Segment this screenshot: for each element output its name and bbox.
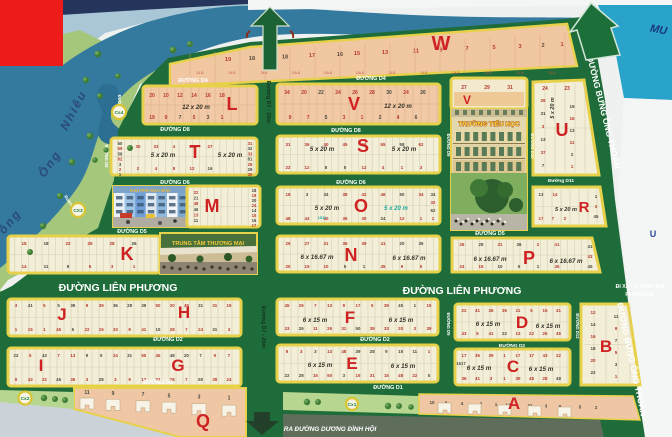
svg-text:12: 12 — [400, 216, 405, 221]
svg-text:Đường D7 - 20m: Đường D7 - 20m — [265, 81, 271, 123]
svg-text:6 x 16.67 m: 6 x 16.67 m — [300, 254, 334, 261]
svg-text:36: 36 — [419, 241, 424, 246]
svg-text:48: 48 — [398, 373, 403, 378]
svg-text:28: 28 — [109, 241, 115, 246]
svg-text:4: 4 — [397, 115, 400, 121]
svg-text:24-B: 24-B — [484, 71, 492, 75]
svg-text:ĐƯỜNG D6: ĐƯỜNG D6 — [160, 178, 189, 186]
svg-text:5: 5 — [579, 404, 582, 409]
svg-text:13: 13 — [327, 303, 332, 308]
svg-text:24: 24 — [227, 377, 232, 382]
svg-text:1617: 1617 — [456, 361, 466, 366]
svg-text:16: 16 — [205, 93, 211, 99]
svg-text:5 x 20 m: 5 x 20 m — [315, 205, 340, 212]
svg-text:26: 26 — [299, 303, 304, 308]
svg-text:39: 39 — [99, 303, 104, 308]
svg-text:ĐƯỜNG D10: ĐƯỜNG D10 — [530, 133, 535, 159]
svg-text:28: 28 — [127, 303, 132, 308]
svg-text:22: 22 — [285, 373, 290, 378]
svg-text:18: 18 — [282, 54, 288, 60]
svg-text:45: 45 — [56, 377, 61, 382]
svg-text:13: 13 — [540, 137, 546, 142]
svg-text:11: 11 — [44, 264, 49, 269]
svg-text:50: 50 — [156, 303, 161, 308]
svg-text:V: V — [348, 94, 360, 114]
svg-text:33: 33 — [384, 326, 389, 331]
svg-text:30: 30 — [386, 90, 392, 96]
svg-text:14: 14 — [21, 264, 27, 269]
svg-text:24.8: 24.8 — [261, 71, 268, 75]
svg-text:20: 20 — [149, 93, 155, 99]
svg-text:33: 33 — [113, 327, 118, 332]
svg-text:19: 19 — [569, 104, 575, 109]
svg-text:24-B: 24-B — [196, 71, 204, 75]
svg-text:28: 28 — [170, 327, 175, 332]
svg-text:6: 6 — [415, 115, 418, 121]
svg-text:6 x 15 m: 6 x 15 m — [303, 317, 328, 324]
svg-text:DA-8: DA-8 — [356, 71, 364, 75]
svg-text:5: 5 — [193, 115, 196, 121]
svg-text:24: 24 — [381, 216, 386, 221]
svg-text:39: 39 — [427, 326, 432, 331]
svg-text:17: 17 — [309, 53, 315, 59]
svg-text:CX3: CX3 — [73, 208, 83, 214]
svg-text:45: 45 — [381, 264, 386, 269]
svg-text:36: 36 — [517, 242, 522, 247]
svg-text:P: P — [523, 248, 535, 268]
svg-text:12: 12 — [590, 310, 596, 315]
svg-text:11: 11 — [413, 49, 419, 55]
svg-text:36: 36 — [502, 308, 507, 313]
svg-text:19: 19 — [149, 115, 155, 121]
svg-text:11: 11 — [84, 390, 90, 396]
svg-text:41: 41 — [475, 376, 480, 381]
svg-text:26: 26 — [420, 90, 426, 96]
svg-text:RA ĐƯỜNG DƯƠNG ĐÌNH HỘI: RA ĐƯỜNG DƯƠNG ĐÌNH HỘI — [284, 424, 377, 433]
svg-text:17: 17 — [356, 303, 361, 308]
svg-text:12: 12 — [362, 165, 367, 170]
svg-text:48: 48 — [286, 216, 291, 221]
svg-text:1: 1 — [133, 264, 136, 269]
svg-text:31: 31 — [212, 327, 217, 332]
svg-text:43: 43 — [28, 377, 33, 382]
svg-text:31: 31 — [370, 373, 375, 378]
svg-text:6 x 15 m: 6 x 15 m — [476, 321, 501, 328]
svg-text:PHÍA ĐÔNG: PHÍA ĐÔNG — [625, 290, 654, 298]
svg-text:39: 39 — [70, 303, 75, 308]
svg-text:30: 30 — [362, 216, 367, 221]
svg-text:6 x 15 m: 6 x 15 m — [529, 366, 554, 373]
svg-text:62: 62 — [431, 208, 436, 213]
svg-text:1: 1 — [361, 115, 364, 121]
svg-text:28: 28 — [479, 242, 484, 247]
svg-text:26: 26 — [327, 326, 332, 331]
svg-text:DA-8: DA-8 — [324, 71, 332, 75]
svg-text:15: 15 — [28, 327, 33, 332]
svg-text:24: 24 — [113, 353, 118, 358]
svg-text:43: 43 — [588, 254, 593, 259]
svg-text:31: 31 — [127, 353, 132, 358]
svg-text:15: 15 — [354, 51, 360, 57]
svg-text:17: 17 — [252, 223, 257, 228]
svg-text:9: 9 — [67, 264, 70, 269]
svg-text:6 x 16.67 m: 6 x 16.67 m — [549, 258, 583, 265]
svg-text:50: 50 — [327, 373, 332, 378]
svg-text:13: 13 — [327, 349, 332, 354]
svg-text:14: 14 — [553, 192, 558, 197]
svg-text:41: 41 — [141, 327, 146, 332]
svg-text:20: 20 — [400, 241, 405, 246]
svg-text:KHU PHỐ MUA BÁN: KHU PHỐ MUA BÁN — [130, 188, 170, 193]
svg-text:45: 45 — [56, 327, 61, 332]
svg-text:22: 22 — [462, 308, 467, 313]
svg-text:17: 17 — [462, 353, 467, 358]
svg-text:41: 41 — [555, 242, 560, 247]
svg-text:31: 31 — [507, 85, 513, 91]
svg-text:41: 41 — [28, 303, 33, 308]
svg-text:45: 45 — [285, 303, 290, 308]
svg-text:44: 44 — [305, 216, 310, 221]
svg-text:1511: 1511 — [318, 215, 327, 220]
svg-text:33: 33 — [285, 326, 290, 331]
svg-text:2: 2 — [571, 152, 574, 157]
svg-text:39: 39 — [212, 377, 217, 382]
svg-text:39: 39 — [516, 376, 521, 381]
svg-text:48: 48 — [194, 201, 199, 206]
svg-text:43: 43 — [543, 353, 548, 358]
svg-text:28: 28 — [299, 373, 304, 378]
svg-text:45: 45 — [588, 264, 593, 269]
svg-text:46: 46 — [194, 207, 199, 212]
svg-text:22: 22 — [556, 353, 561, 358]
svg-text:45: 45 — [594, 214, 599, 219]
svg-text:7: 7 — [179, 115, 182, 121]
svg-text:Đường D7 - 20m: Đường D7 - 20m — [260, 306, 266, 348]
svg-text:24: 24 — [403, 90, 409, 96]
svg-text:1: 1 — [571, 164, 574, 169]
svg-text:31: 31 — [198, 303, 203, 308]
svg-text:24-B: 24-B — [388, 71, 396, 75]
svg-text:24-B: 24-B — [516, 71, 524, 75]
svg-text:2: 2 — [541, 43, 544, 49]
svg-text:7: 7 — [142, 392, 145, 398]
svg-text:12: 12 — [305, 165, 310, 170]
svg-text:20: 20 — [170, 303, 175, 308]
svg-text:15: 15 — [227, 303, 232, 308]
svg-text:D4-B: D4-B — [452, 71, 460, 75]
svg-text:M: M — [205, 196, 220, 216]
svg-text:45: 45 — [343, 142, 348, 147]
svg-text:1: 1 — [228, 396, 231, 402]
svg-text:T: T — [190, 142, 201, 162]
svg-text:24: 24 — [335, 90, 341, 96]
svg-text:55: 55 — [381, 142, 386, 147]
svg-text:16: 16 — [590, 334, 596, 339]
svg-text:22: 22 — [529, 331, 534, 336]
svg-text:45: 45 — [556, 331, 561, 336]
svg-text:36: 36 — [489, 308, 494, 313]
svg-text:32: 32 — [431, 200, 436, 205]
svg-text:34: 34 — [284, 90, 290, 96]
svg-text:G: G — [171, 356, 184, 375]
svg-text:17: 17 — [529, 353, 534, 358]
svg-text:22: 22 — [502, 331, 507, 336]
svg-text:35: 35 — [136, 144, 141, 149]
svg-text:5 x 20 m: 5 x 20 m — [151, 152, 176, 159]
svg-text:50: 50 — [141, 353, 146, 358]
svg-text:20: 20 — [398, 326, 403, 331]
svg-text:39: 39 — [141, 303, 146, 308]
svg-text:R: R — [579, 199, 590, 216]
svg-text:28: 28 — [543, 376, 548, 381]
svg-text:31: 31 — [498, 242, 503, 247]
svg-text:26: 26 — [299, 326, 304, 331]
svg-text:18: 18 — [590, 346, 596, 351]
svg-text:4: 4 — [461, 401, 464, 406]
svg-text:22: 22 — [85, 327, 90, 332]
svg-text:41: 41 — [475, 308, 480, 313]
svg-text:11: 11 — [313, 326, 318, 331]
svg-text:ĐI XA LỘ VÀNH ĐAI: ĐI XA LỘ VÀNH ĐAI — [616, 282, 665, 290]
svg-text:15: 15 — [156, 327, 161, 332]
svg-text:39: 39 — [384, 303, 389, 308]
svg-text:F: F — [345, 308, 355, 327]
svg-text:41: 41 — [556, 308, 561, 313]
svg-text:5: 5 — [168, 393, 171, 399]
svg-text:E: E — [346, 354, 357, 373]
svg-text:7: 7 — [307, 115, 310, 121]
svg-text:6 x 15 m: 6 x 15 m — [389, 317, 414, 324]
svg-text:15: 15 — [384, 373, 389, 378]
svg-text:6 x 15 m: 6 x 15 m — [308, 362, 333, 369]
svg-text:D: D — [516, 313, 528, 332]
svg-text:2: 2 — [379, 115, 382, 121]
svg-text:22: 22 — [65, 241, 71, 246]
svg-text:36: 36 — [343, 216, 348, 221]
svg-text:6 x 15 m: 6 x 15 m — [536, 323, 561, 330]
svg-text:Q: Q — [196, 411, 210, 431]
svg-text:41: 41 — [381, 241, 386, 246]
svg-text:O: O — [354, 196, 368, 216]
svg-text:34: 34 — [431, 192, 436, 197]
svg-text:38: 38 — [343, 192, 348, 197]
svg-text:Đường D11: Đường D11 — [548, 178, 574, 184]
svg-text:TRUNG TÂM THƯƠNG MẠI: TRUNG TÂM THƯƠNG MẠI — [172, 240, 245, 247]
svg-text:22: 22 — [42, 377, 47, 382]
svg-text:6 x 15 m: 6 x 15 m — [467, 365, 492, 372]
svg-text:J: J — [57, 305, 66, 324]
svg-text:15: 15 — [305, 264, 310, 269]
svg-text:26: 26 — [286, 241, 291, 246]
svg-text:36: 36 — [113, 303, 118, 308]
svg-text:15: 15 — [313, 373, 318, 378]
svg-text:S: S — [357, 136, 369, 156]
svg-text:1: 1 — [221, 115, 224, 121]
svg-text:5 x 20 m: 5 x 20 m — [550, 97, 556, 118]
svg-text:ĐƯỜNG D2: ĐƯỜNG D2 — [153, 335, 182, 343]
svg-text:24: 24 — [542, 86, 548, 92]
svg-text:14: 14 — [191, 93, 197, 99]
svg-text:22: 22 — [318, 90, 324, 96]
svg-text:10: 10 — [324, 264, 329, 269]
svg-text:ĐƯỜNG D5: ĐƯỜNG D5 — [117, 227, 146, 235]
svg-text:Cs4: Cs4 — [115, 110, 124, 116]
svg-text:3: 3 — [111, 264, 114, 269]
svg-text:29: 29 — [484, 85, 490, 91]
svg-text:3: 3 — [615, 362, 618, 367]
svg-text:13: 13 — [382, 50, 388, 56]
svg-text:41: 41 — [489, 331, 494, 336]
svg-text:50: 50 — [198, 377, 203, 382]
svg-text:13: 13 — [70, 353, 75, 358]
svg-text:7: 7 — [465, 46, 468, 52]
svg-text:K: K — [121, 244, 134, 264]
svg-text:16: 16 — [569, 116, 575, 121]
svg-text:U: U — [556, 120, 569, 140]
svg-text:19: 19 — [225, 57, 231, 63]
svg-text:W: W — [432, 33, 451, 55]
svg-text:5: 5 — [89, 264, 92, 269]
svg-text:27: 27 — [461, 85, 467, 91]
svg-text:20: 20 — [301, 90, 307, 96]
svg-text:Cx1: Cx1 — [348, 402, 357, 408]
svg-text:13: 13 — [194, 212, 199, 217]
svg-text:18: 18 — [286, 192, 291, 197]
svg-text:ĐƯỜNG D2: ĐƯỜNG D2 — [360, 335, 389, 343]
svg-text:36: 36 — [70, 377, 75, 382]
svg-text:ĐƯỜNG D1: ĐƯỜNG D1 — [143, 378, 172, 386]
svg-text:10: 10 — [163, 93, 169, 99]
svg-text:H: H — [178, 303, 190, 322]
svg-text:24-B: 24-B — [548, 71, 556, 75]
svg-text:20: 20 — [184, 353, 189, 358]
svg-text:5 x 20 m: 5 x 20 m — [392, 146, 417, 153]
svg-text:6 x 16.67 m: 6 x 16.67 m — [392, 255, 426, 262]
svg-text:5: 5 — [325, 115, 328, 121]
svg-text:ĐƯỜNG D8: ĐƯỜNG D8 — [160, 125, 189, 133]
svg-text:3: 3 — [198, 394, 201, 400]
svg-text:5 x 20 m: 5 x 20 m — [384, 206, 408, 212]
svg-text:39: 39 — [370, 326, 375, 331]
svg-text:1: 1 — [560, 42, 563, 48]
svg-text:10: 10 — [429, 400, 435, 405]
svg-text:15: 15 — [427, 303, 432, 308]
svg-text:5 x 20 m: 5 x 20 m — [310, 146, 335, 153]
svg-text:B: B — [600, 337, 612, 356]
svg-text:27: 27 — [305, 241, 310, 246]
svg-text:23: 23 — [564, 86, 570, 92]
svg-text:18: 18 — [43, 241, 49, 246]
svg-text:ĐƯỜNG D8: ĐƯỜNG D8 — [331, 126, 360, 134]
svg-text:41: 41 — [588, 244, 593, 249]
svg-text:15: 15 — [356, 373, 361, 378]
svg-text:27: 27 — [208, 144, 213, 149]
svg-text:6 x 16.67 m: 6 x 16.67 m — [473, 256, 507, 263]
svg-text:28: 28 — [369, 90, 375, 96]
svg-text:3: 3 — [207, 115, 210, 121]
svg-text:30: 30 — [248, 172, 253, 177]
svg-text:ĐƯỜNG D6: ĐƯỜNG D6 — [336, 178, 365, 186]
svg-text:15: 15 — [21, 241, 27, 246]
svg-text:3: 3 — [343, 115, 346, 121]
svg-text:I: I — [39, 356, 44, 375]
svg-text:22: 22 — [194, 190, 199, 195]
svg-text:26: 26 — [543, 331, 548, 336]
svg-text:48: 48 — [556, 376, 561, 381]
svg-text:31: 31 — [212, 303, 217, 308]
svg-text:14: 14 — [590, 322, 596, 327]
svg-text:3: 3 — [545, 403, 548, 408]
svg-text:1: 1 — [495, 402, 498, 407]
svg-text:3: 3 — [542, 124, 545, 129]
svg-text:36: 36 — [475, 353, 480, 358]
svg-text:5: 5 — [492, 45, 495, 51]
svg-text:DA-8: DA-8 — [292, 71, 300, 75]
svg-text:22: 22 — [412, 373, 417, 378]
svg-text:9: 9 — [289, 115, 292, 121]
svg-text:3: 3 — [518, 44, 521, 50]
svg-text:25: 25 — [87, 241, 93, 246]
svg-text:A: A — [508, 394, 520, 413]
svg-text:33: 33 — [154, 144, 159, 149]
svg-text:L: L — [227, 94, 238, 114]
svg-text:24: 24 — [198, 327, 203, 332]
svg-text:34: 34 — [324, 192, 329, 197]
svg-text:31: 31 — [540, 111, 546, 116]
svg-text:12: 12 — [177, 93, 183, 99]
svg-text:ĐƯỜNG D12: ĐƯỜNG D12 — [575, 313, 580, 339]
svg-text:39: 39 — [362, 241, 367, 246]
svg-text:39: 39 — [489, 353, 494, 358]
svg-text:ĐƯỜNG D1: ĐƯỜNG D1 — [373, 383, 402, 391]
svg-text:31: 31 — [286, 142, 291, 147]
svg-text:13: 13 — [569, 128, 575, 133]
svg-text:18: 18 — [219, 93, 225, 99]
svg-text:22: 22 — [590, 370, 596, 375]
svg-text:7: 7 — [542, 163, 545, 168]
svg-text:20: 20 — [286, 264, 291, 269]
svg-text:9: 9 — [112, 391, 115, 397]
svg-text:5: 5 — [615, 350, 618, 355]
svg-text:5 x 20 m: 5 x 20 m — [555, 207, 577, 213]
svg-text:ĐƯỜNG D4: ĐƯỜNG D4 — [178, 76, 207, 84]
svg-text:5 x 20 m: 5 x 20 m — [218, 152, 243, 159]
svg-text:11: 11 — [412, 349, 417, 354]
svg-text:24-B: 24-B — [420, 71, 428, 75]
svg-text:45: 45 — [398, 303, 403, 308]
svg-text:31: 31 — [324, 241, 329, 246]
svg-text:9: 9 — [615, 326, 618, 331]
svg-text:22: 22 — [286, 165, 291, 170]
svg-text:10: 10 — [498, 264, 503, 269]
svg-text:15: 15 — [543, 308, 548, 313]
svg-text:12: 12 — [190, 166, 195, 171]
svg-text:15: 15 — [398, 349, 403, 354]
svg-text:15: 15 — [99, 327, 104, 332]
svg-text:ĐƯỜNG D9: ĐƯỜNG D9 — [446, 313, 451, 337]
svg-text:15: 15 — [479, 264, 484, 269]
svg-text:16: 16 — [208, 166, 213, 171]
svg-text:28: 28 — [370, 349, 375, 354]
svg-text:12 x 20 m: 12 x 20 m — [384, 103, 412, 110]
svg-text:46: 46 — [381, 192, 386, 197]
svg-text:48: 48 — [529, 376, 534, 381]
svg-text:13: 13 — [539, 192, 544, 197]
svg-text:62: 62 — [419, 142, 424, 147]
svg-text:1: 1 — [615, 374, 618, 379]
svg-text:9: 9 — [165, 115, 168, 121]
svg-text:N: N — [345, 245, 358, 265]
